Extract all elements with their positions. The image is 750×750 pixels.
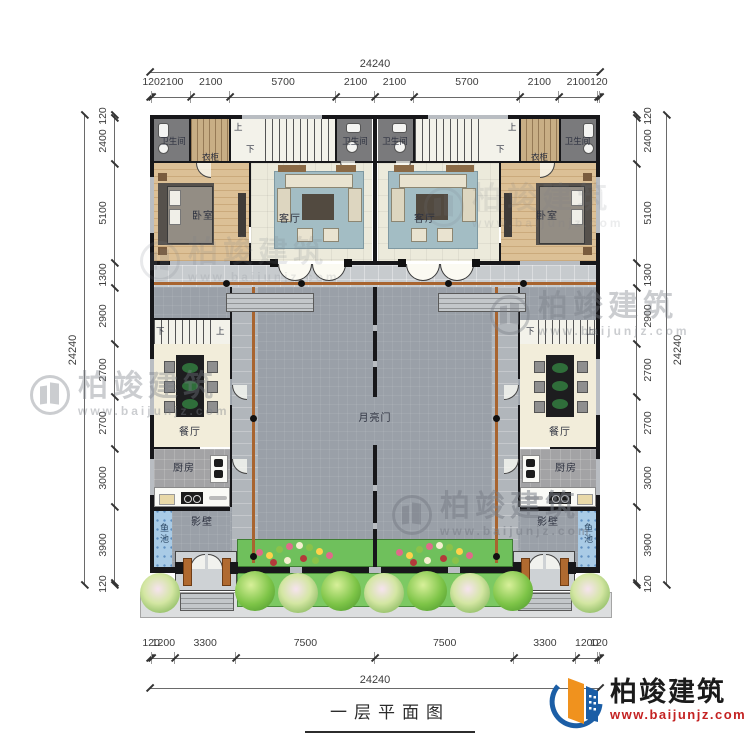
door-leaf [295, 264, 312, 281]
dimension-segment: 2100 [336, 76, 375, 97]
wall [154, 447, 200, 449]
label-stair-up: 上 [234, 121, 243, 133]
courtyard-steps-left [226, 293, 314, 312]
living-entry-doors-left [278, 264, 346, 281]
brand-logo-icon [548, 668, 604, 732]
dim-total-bottom: 24240 [150, 666, 600, 689]
dim-total-left: 24240 [62, 115, 85, 585]
tree [140, 573, 180, 613]
label-living-room: 客厅 [265, 210, 315, 225]
label-fish-pond: 鱼池 [158, 523, 171, 545]
chair [534, 381, 545, 393]
dining-table-left [176, 355, 204, 417]
living-entry-doors-right [406, 264, 474, 281]
column [250, 553, 257, 560]
tv-cabinet-right [504, 193, 512, 237]
dimension-segment: 120 [637, 583, 659, 585]
tree [364, 573, 404, 613]
flower-cluster-left [256, 549, 263, 556]
wall [154, 261, 170, 265]
column [520, 280, 527, 287]
dimension-segment: 7500 [236, 637, 375, 658]
chair [577, 361, 588, 373]
brand-logo: 柏竣建筑 www.baijunjz.com [548, 668, 746, 732]
dimension-segment: 7500 [375, 637, 514, 658]
stair-treads-upper-right [415, 119, 485, 161]
dimension-chain-top: 12021002100570021002100570021002100120 [150, 76, 600, 98]
dimension-segment: 5700 [414, 76, 520, 97]
dimension-segment: 2700 [637, 397, 659, 449]
dimension-segment: 1200 [152, 637, 174, 658]
kitchen-sink-left [210, 455, 228, 483]
dimension-segment: 5100 [637, 164, 659, 263]
courtyard-steps-right [438, 293, 526, 312]
door-leaf [312, 264, 329, 281]
flower-cluster-right [396, 549, 403, 556]
door-jamb [270, 259, 278, 267]
window-west-bedroom [150, 177, 154, 233]
cabinet [446, 165, 474, 172]
plate [552, 399, 568, 409]
column [493, 553, 500, 560]
window-east-bedroom [596, 177, 600, 233]
chair [534, 401, 545, 413]
sink-bowl [214, 470, 223, 478]
cabinet [159, 494, 175, 505]
column [493, 415, 500, 422]
tree [321, 571, 361, 611]
chair [164, 361, 175, 373]
dimension-segment: 3900 [637, 507, 659, 583]
veranda-beam-left [252, 287, 255, 563]
wall [499, 163, 501, 227]
label-stair-down: 下 [246, 143, 255, 155]
kitchen-counter-right [520, 487, 596, 507]
window-top-left [242, 115, 322, 119]
drawing-title: 一层平面图 [305, 698, 475, 733]
door-leaf [423, 264, 440, 281]
dimension-segment: 1300 [92, 263, 114, 288]
bedroom-window-left [170, 261, 230, 265]
dimension-chain-bottom: 120120033007500750033001200120 [150, 637, 600, 659]
dimension-segment: 120 [598, 76, 600, 97]
floorplan-sheet: 24240 1202100210057002100210057002100210… [0, 0, 750, 750]
nightstand [158, 247, 167, 255]
tree [450, 573, 490, 613]
moon-gate-wall-upper [373, 287, 377, 397]
counter-dots [525, 496, 543, 500]
label-living-room: 客厅 [400, 210, 450, 225]
dimension-segment: 2400 [92, 117, 114, 164]
toilet [392, 123, 407, 133]
kitchen-sink-right [522, 455, 540, 483]
dimension-segment: 2100 [152, 76, 191, 97]
sofa [285, 174, 353, 188]
door-leaf [406, 264, 423, 281]
wall [550, 447, 596, 449]
gate-jamb [568, 562, 576, 574]
stool [437, 228, 453, 242]
burner [184, 495, 192, 503]
dimension-segment: 2700 [637, 344, 659, 396]
column [250, 415, 257, 422]
gate-leaf [208, 554, 223, 569]
wall [580, 261, 596, 265]
wall [413, 119, 415, 163]
dimension-segment: 3300 [175, 637, 236, 658]
label-bathroom: 卫生间 [378, 135, 412, 147]
label-kitchen: 厨房 [542, 459, 590, 474]
tree [278, 573, 318, 613]
armchair [462, 188, 476, 222]
pillow [571, 209, 583, 225]
label-screen-wall: 影壁 [524, 513, 572, 528]
burner [193, 495, 201, 503]
wall-south-1 [150, 567, 175, 573]
wall [344, 261, 406, 265]
dim-total-top-value: 24240 [360, 58, 391, 70]
window-east-kitchen [596, 459, 600, 495]
wall [154, 507, 230, 511]
stair-treads-upper-left [265, 119, 335, 161]
south-wall-post [448, 567, 460, 573]
wall-notch [373, 361, 377, 367]
chair [577, 381, 588, 393]
door-jamb [344, 259, 352, 267]
chair [207, 401, 218, 413]
gate-leaf [190, 554, 205, 569]
label-bathroom: 卫生间 [155, 135, 191, 147]
brand-name: 柏竣建筑 [610, 678, 746, 706]
wall-notch [373, 523, 377, 529]
cabinet [577, 494, 593, 505]
gate-post [183, 558, 192, 586]
wall [154, 318, 230, 320]
hall-right [520, 287, 596, 320]
label-stair-down: 下 [526, 325, 535, 337]
dimension-segment: 3900 [92, 507, 114, 583]
gate-leaf [528, 554, 543, 569]
dimension-segment: 5100 [92, 164, 114, 263]
label-kitchen: 厨房 [160, 459, 208, 474]
plate [182, 381, 198, 391]
stool [323, 228, 339, 242]
tree [493, 571, 533, 611]
chair [164, 401, 175, 413]
plate [552, 381, 568, 391]
sofa [399, 174, 467, 188]
label-bedroom: 卧室 [522, 207, 572, 222]
label-bathroom: 卫生间 [559, 135, 596, 147]
window-west-dining [150, 359, 154, 415]
stool [411, 228, 427, 242]
party-wall [373, 115, 377, 265]
plate [182, 399, 198, 409]
label-fish-pond: 鱼池 [582, 523, 595, 545]
wall [335, 119, 337, 163]
dimension-segment: 120 [598, 637, 600, 658]
sink-bowl [526, 470, 535, 478]
dimension-segment: 3000 [92, 449, 114, 507]
chair [207, 381, 218, 393]
column [298, 280, 305, 287]
nightstand [158, 173, 167, 181]
cabinet [394, 165, 414, 172]
tree [570, 573, 610, 613]
label-stair-up: 上 [508, 121, 517, 133]
pillow [169, 190, 181, 206]
column [223, 280, 230, 287]
stool [297, 228, 313, 242]
cooktop [549, 492, 571, 504]
cooktop [181, 492, 203, 504]
burner [561, 495, 569, 503]
building-plan: 卫生间 衣柜 卫生间 卫生间 衣柜 卫生间 上 下 上 下 卧室 卧室 客厅 客… [150, 115, 600, 585]
plate [182, 363, 198, 373]
dimension-segment: 5700 [230, 76, 336, 97]
bedroom-window-right [520, 261, 580, 265]
plate [552, 363, 568, 373]
dim-total-top: 24240 [150, 50, 600, 73]
dimension-chain-right: 12024005100130029002700270030003900120 [636, 115, 659, 585]
brand-url: www.baijunjz.com [610, 707, 746, 722]
sink-bowl [214, 459, 223, 467]
label-stair-down: 下 [496, 143, 505, 155]
label-moon-gate: 月亮门 [340, 409, 410, 424]
gate-jamb [230, 562, 238, 574]
label-wardrobe: 衣柜 [520, 151, 559, 163]
wall [520, 507, 596, 511]
wall [249, 243, 251, 261]
south-wall-post [369, 567, 381, 573]
cabinet [278, 165, 306, 172]
tree [235, 571, 275, 611]
label-bathroom: 卫生间 [338, 135, 372, 147]
hall-left [154, 287, 230, 320]
dimension-chain-left: 12024005100130029002700270030003900120 [92, 115, 115, 585]
window-east-dining [596, 359, 600, 415]
tv-cabinet-left [238, 193, 246, 237]
dimension-segment: 2400 [637, 117, 659, 164]
door-leaf [278, 264, 295, 281]
dim-total-right: 24240 [666, 115, 689, 585]
dimension-segment: 3300 [514, 637, 575, 658]
label-bedroom: 卧室 [178, 207, 228, 222]
chair [207, 361, 218, 373]
dimension-segment: 2700 [92, 397, 114, 449]
window-top-right [428, 115, 508, 119]
dimension-segment: 2700 [92, 344, 114, 396]
nightstand [583, 173, 592, 181]
label-stair-up: 上 [216, 325, 225, 337]
door-jamb [472, 259, 480, 267]
dimension-segment: 2100 [520, 76, 559, 97]
gate-jamb [175, 562, 183, 574]
veranda-beam-right [495, 287, 498, 563]
kitchen-counter-left [154, 487, 230, 507]
dimension-segment: 2100 [375, 76, 414, 97]
counter-dots [209, 496, 227, 500]
dimension-segment: 2900 [637, 288, 659, 344]
gate-leaf [546, 554, 561, 569]
label-wardrobe: 衣柜 [191, 151, 230, 163]
wall [249, 163, 251, 227]
door-jamb [398, 259, 406, 267]
armchair [348, 188, 362, 222]
cabinet [336, 165, 356, 172]
wall-notch [373, 485, 377, 491]
label-dining-room: 餐厅 [536, 423, 584, 438]
tree [407, 571, 447, 611]
label-screen-wall: 影壁 [178, 513, 226, 528]
dimension-segment: 2100 [191, 76, 230, 97]
label-stair-down: 下 [156, 325, 165, 337]
chair [534, 361, 545, 373]
gate-steps-left [180, 593, 234, 611]
burner [552, 495, 560, 503]
label-dining-room: 餐厅 [166, 423, 214, 438]
toilet [346, 123, 361, 133]
column [445, 280, 452, 287]
chair [164, 381, 175, 393]
porch-beam [154, 282, 596, 285]
wall [499, 243, 501, 261]
wall [230, 405, 232, 507]
dimension-segment: 120 [92, 583, 114, 585]
dining-table-right [546, 355, 574, 417]
dimension-segment: 2900 [92, 288, 114, 344]
chair [577, 401, 588, 413]
dimension-segment: 3000 [637, 449, 659, 507]
label-stair-up: 上 [586, 325, 595, 337]
wall-notch [373, 325, 377, 331]
pillow [571, 190, 583, 206]
sink-bowl [526, 459, 535, 467]
dimension-segment: 1300 [637, 263, 659, 288]
nightstand [583, 247, 592, 255]
front-gate-left [175, 551, 237, 591]
door-leaf [440, 264, 457, 281]
moon-gate-wall-lower [373, 445, 377, 567]
